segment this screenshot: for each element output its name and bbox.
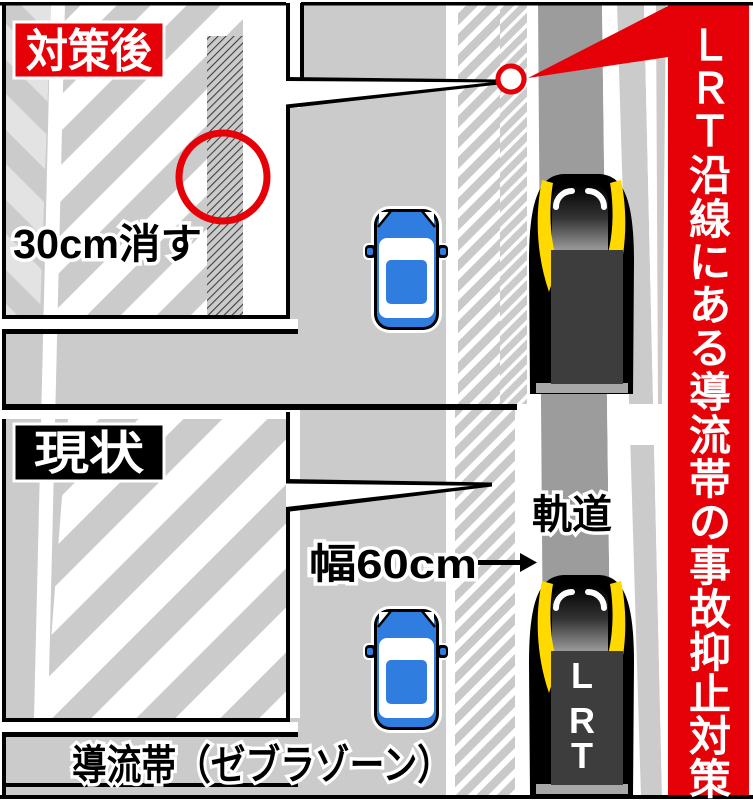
svg-text:帯: 帯 xyxy=(689,456,731,503)
svg-text:あ: あ xyxy=(689,282,731,329)
svg-text:線: 線 xyxy=(689,196,731,243)
svg-text:Ｔ: Ｔ xyxy=(689,108,731,155)
svg-text:の: の xyxy=(689,499,731,546)
svg-text:策: 策 xyxy=(689,756,731,800)
svg-text:る: る xyxy=(689,325,731,372)
svg-text:故: 故 xyxy=(689,586,731,633)
svg-text:沿: 沿 xyxy=(689,152,731,199)
svg-text:導: 導 xyxy=(689,369,731,416)
svg-text:抑: 抑 xyxy=(689,629,731,676)
svg-text:対: 対 xyxy=(689,713,731,760)
svg-text:Ｌ: Ｌ xyxy=(689,22,731,69)
svg-text:に: に xyxy=(689,239,731,286)
svg-text:Ｒ: Ｒ xyxy=(689,65,731,112)
svg-text:事: 事 xyxy=(689,543,731,590)
svg-text:止: 止 xyxy=(689,671,731,718)
svg-text:流: 流 xyxy=(689,412,731,459)
